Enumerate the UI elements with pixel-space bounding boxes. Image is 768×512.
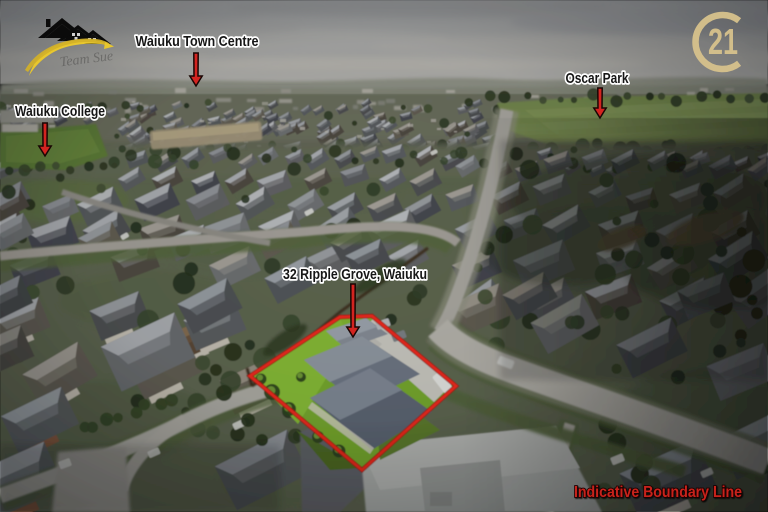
svg-text:21: 21 — [708, 21, 738, 62]
svg-text:Indicative Boundary Line: Indicative Boundary Line — [574, 484, 742, 501]
svg-text:Waiuku Town Centre: Waiuku Town Centre — [136, 33, 259, 50]
svg-text:Waiuku College: Waiuku College — [15, 103, 105, 120]
svg-text:32 Ripple Grove, Waiuku: 32 Ripple Grove, Waiuku — [283, 266, 427, 283]
svg-text:Oscar Park: Oscar Park — [566, 70, 630, 87]
